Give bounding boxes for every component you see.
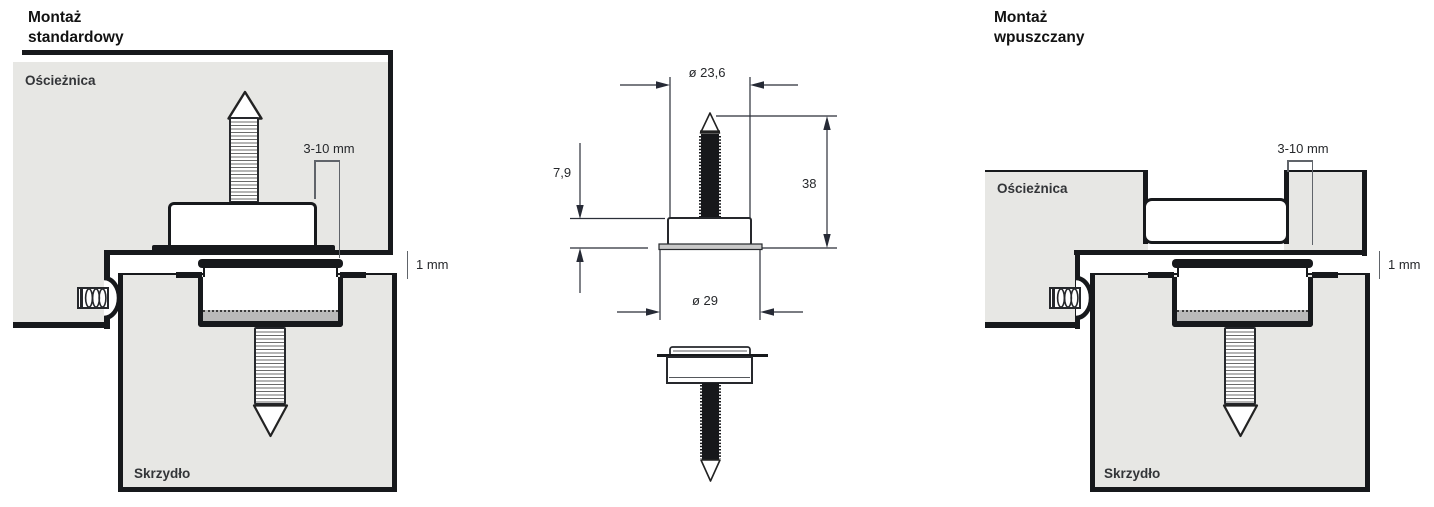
center-housing-height-label: 7,9 xyxy=(553,165,571,180)
left-gap-dim-line xyxy=(407,251,409,279)
left-catch-body xyxy=(168,202,317,246)
left-leaf-label: Skrzydło xyxy=(134,466,190,481)
right-view-title: Montaż wpuszczany xyxy=(994,8,1084,48)
right-leaf-label: Skrzydło xyxy=(1104,466,1160,481)
left-protrusion-dim-bracket-left-leg xyxy=(314,160,316,199)
center-overall-height-label: 38 xyxy=(802,176,816,191)
right-frame-right-edge xyxy=(1362,170,1367,256)
left-view-title: Montaż standardowy xyxy=(28,8,124,48)
right-frame-top-edge-b xyxy=(1287,170,1367,172)
right-recessed-catch-plate xyxy=(1143,198,1289,244)
left-cup-body xyxy=(198,277,343,327)
left-wood-screw-shaft xyxy=(254,327,286,405)
left-protrusion-dim-bracket-top xyxy=(314,160,340,162)
left-protrusion-dim-bracket-right-leg xyxy=(339,160,341,258)
right-protrusion-dim-label: 3-10 mm xyxy=(1277,141,1328,156)
left-cup-magnet-band xyxy=(203,310,338,321)
right-wood-screw-tip xyxy=(1222,404,1259,438)
center-flange-diameter-label: ø 29 xyxy=(692,293,718,308)
right-gap-dim-label: 1 mm xyxy=(1388,257,1421,272)
right-protrusion-dim-bracket-right-leg xyxy=(1312,160,1314,245)
left-cup-cap xyxy=(198,259,343,268)
right-frame-bottom-edge xyxy=(1074,250,1367,255)
left-frame-right-edge xyxy=(388,50,393,255)
left-leaf-edge-segment-b xyxy=(340,272,366,278)
center-top-diameter-label: ø 23,6 xyxy=(689,65,726,80)
left-catch-flange xyxy=(152,245,335,253)
left-frame-label: Ościeżnica xyxy=(25,73,96,88)
right-cup-cap xyxy=(1172,259,1313,268)
left-frame-fixing-screw xyxy=(70,272,132,334)
right-frame-label: Ościeżnica xyxy=(997,181,1068,196)
center-pin-and-housing xyxy=(659,113,762,250)
technical-drawing-page: Montaż standardowy Ościeżnica 3-10 mm 1 … xyxy=(0,0,1434,507)
right-leaf-edge-segment-b xyxy=(1312,272,1338,278)
left-gap-dim-label: 1 mm xyxy=(416,257,449,272)
right-frame-fixing-screw xyxy=(1042,272,1104,334)
right-leaf-edge-segment-a xyxy=(1148,272,1174,278)
right-frame-top-edge-a xyxy=(985,170,1145,172)
right-cup-magnet-band xyxy=(1177,310,1308,321)
left-wood-screw-tip xyxy=(252,404,289,438)
right-protrusion-dim-bracket-top xyxy=(1287,160,1313,162)
right-gap-dim-line xyxy=(1379,251,1381,279)
left-striker-pin-shaft xyxy=(229,117,259,203)
right-cup-body xyxy=(1172,277,1313,327)
center-cup-and-screw xyxy=(657,347,768,481)
left-frame-top-edge xyxy=(22,50,393,55)
center-product-drawing xyxy=(545,60,890,500)
left-protrusion-dim-label: 3-10 mm xyxy=(303,141,354,156)
right-wood-screw-shaft xyxy=(1224,327,1256,405)
right-protrusion-dim-bracket-left-leg xyxy=(1287,160,1289,172)
